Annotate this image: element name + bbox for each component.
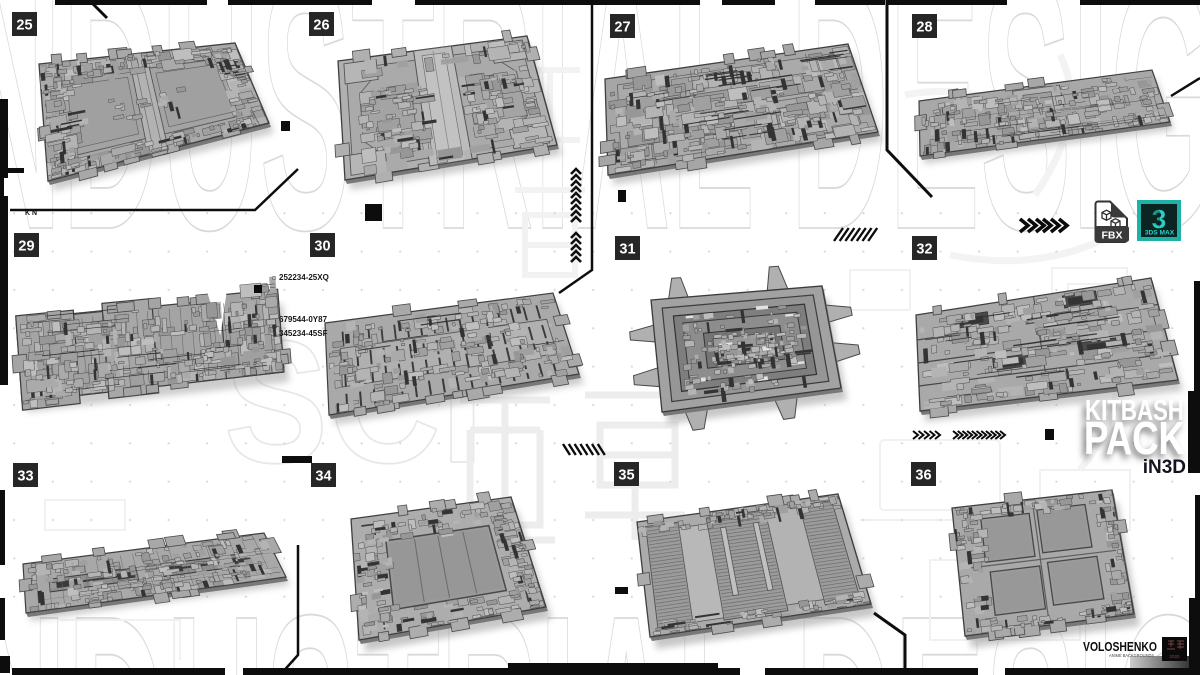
svg-text:VOLOSHENKO: VOLOSHENKO	[1083, 639, 1157, 654]
svg-text:25: 25	[16, 18, 32, 34]
svg-text:26: 26	[313, 18, 329, 34]
svg-text:2020: 2020	[1169, 654, 1180, 659]
svg-text:252234-25XQ: 252234-25XQ	[279, 273, 329, 282]
svg-text:3DS MAX: 3DS MAX	[1145, 230, 1175, 237]
svg-text:36: 36	[915, 468, 931, 484]
svg-text:27: 27	[614, 20, 630, 36]
svg-text:iN3D: iN3D	[1143, 457, 1186, 478]
svg-text:345234-45SF: 345234-45SF	[279, 329, 328, 338]
svg-text:ANIME BACKGROUNDS: ANIME BACKGROUNDS	[1109, 653, 1154, 658]
svg-text:679544-0Y87: 679544-0Y87	[279, 315, 328, 324]
svg-text:31: 31	[619, 242, 635, 258]
svg-text:30: 30	[314, 239, 330, 255]
svg-text:28: 28	[916, 20, 932, 36]
svg-text:29: 29	[18, 239, 34, 255]
svg-text:35: 35	[618, 468, 634, 484]
svg-text:FBX: FBX	[1102, 230, 1123, 242]
svg-text:32: 32	[916, 242, 932, 258]
svg-text:33: 33	[17, 469, 33, 485]
svg-text:34: 34	[315, 469, 331, 485]
